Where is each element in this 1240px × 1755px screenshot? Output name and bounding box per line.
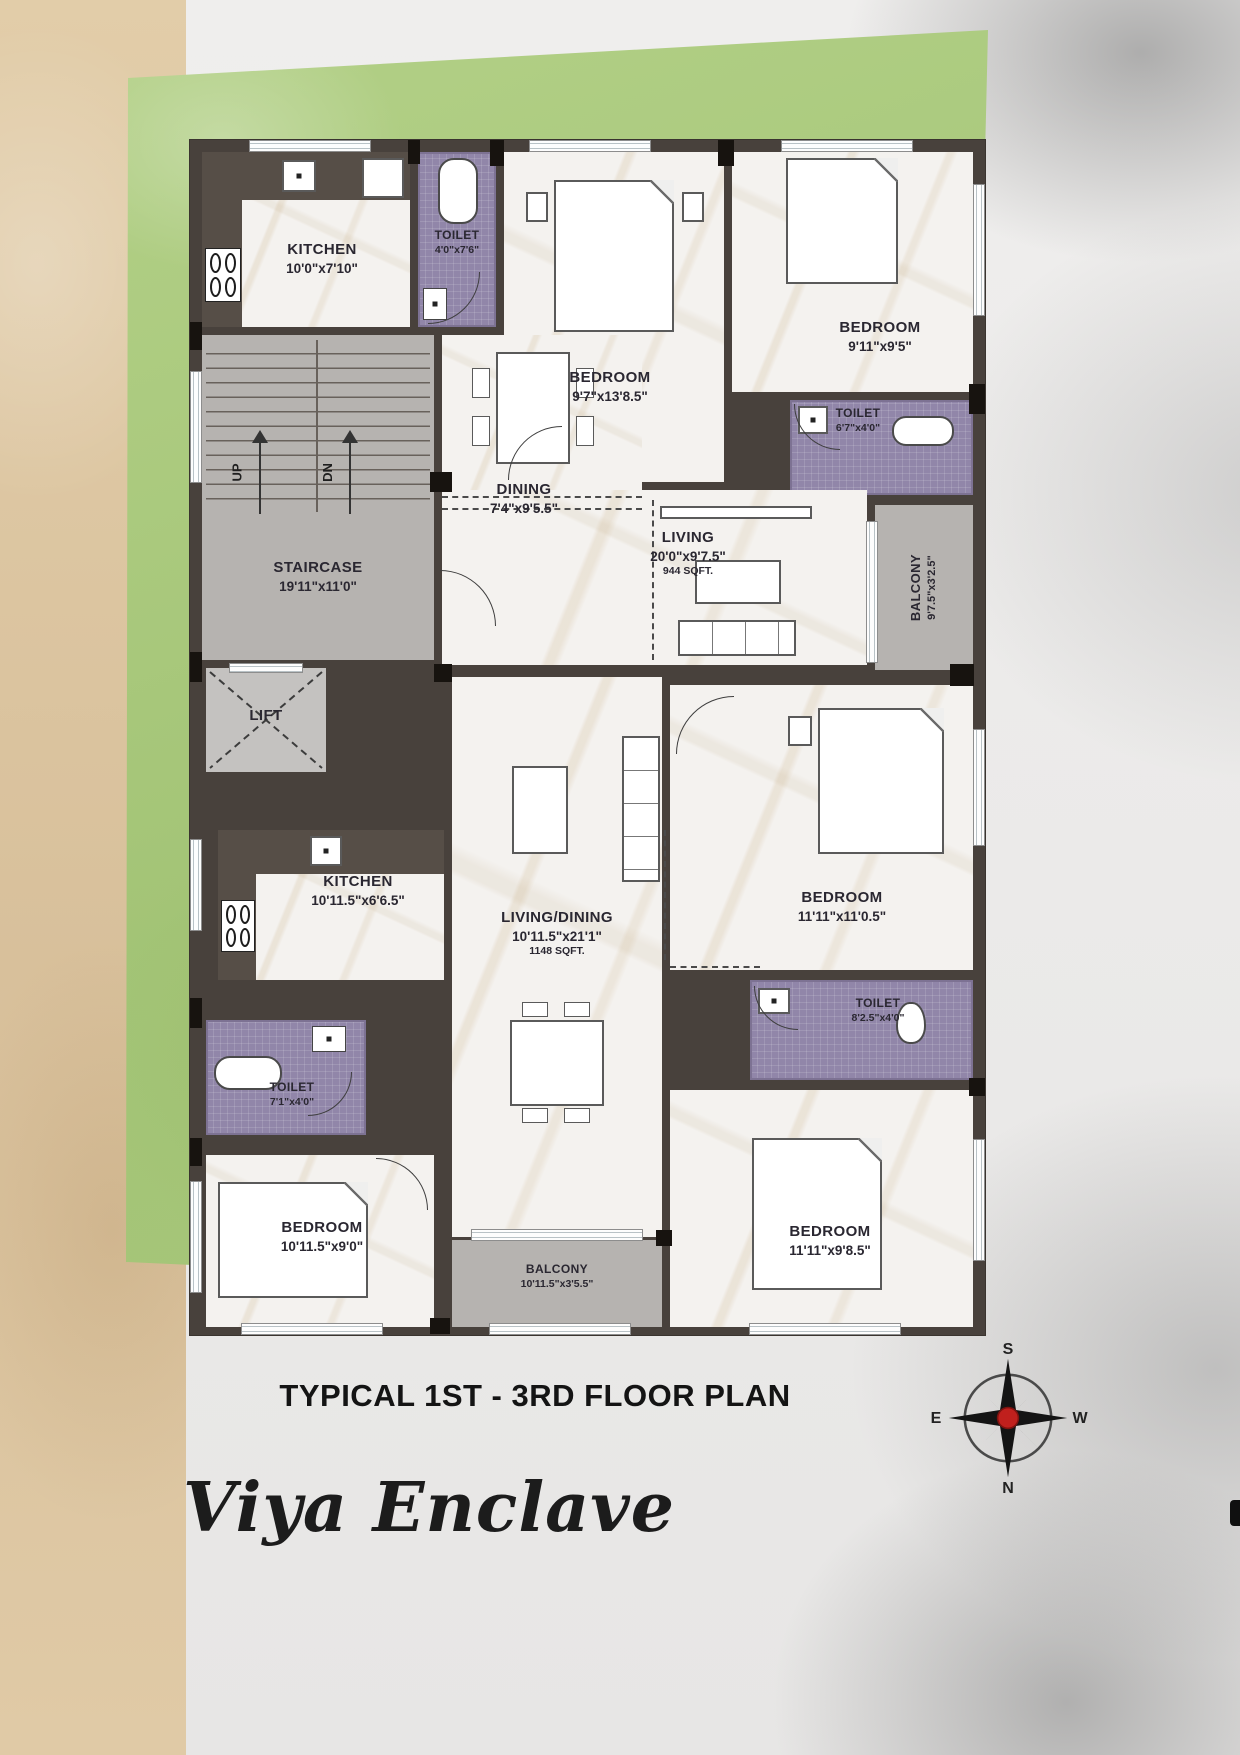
room-label-toilet-4: TOILET 8'2.5"x4'0" bbox=[852, 996, 905, 1025]
room-dims: 10'11.5"x3'5.5" bbox=[521, 1278, 594, 1292]
staircase-steps bbox=[206, 340, 430, 512]
column bbox=[430, 1318, 450, 1334]
blanket-fold bbox=[920, 708, 944, 732]
room-name: BEDROOM bbox=[839, 318, 920, 338]
room-name: LIFT bbox=[249, 706, 282, 726]
room-dims: 11'11"x9'8.5" bbox=[789, 1242, 871, 1260]
room-name: STAIRCASE bbox=[273, 558, 362, 578]
column bbox=[969, 384, 985, 414]
blanket-fold bbox=[650, 180, 674, 204]
toilet-1-bathtub bbox=[438, 158, 478, 224]
window bbox=[191, 1182, 201, 1292]
lift-door bbox=[230, 664, 302, 672]
burner bbox=[225, 277, 236, 297]
living-1-sofa bbox=[678, 620, 796, 656]
room-label-toilet-3: TOILET 7'1"x4'0" bbox=[270, 1080, 315, 1109]
burner bbox=[226, 905, 236, 924]
room-name: BEDROOM bbox=[569, 368, 650, 388]
living-dining-coffee-table bbox=[512, 766, 568, 854]
room-name: BEDROOM bbox=[798, 888, 886, 908]
window bbox=[490, 1324, 630, 1334]
room-dims: 7'4"x9'5.5" bbox=[490, 500, 558, 518]
room-name: TOILET bbox=[435, 228, 480, 244]
dining-1-chair bbox=[472, 416, 490, 446]
window bbox=[250, 141, 370, 151]
blanket-fold bbox=[344, 1182, 368, 1206]
balcony-1-window bbox=[867, 522, 877, 662]
room-dims: 20'0"x9'7.5" bbox=[650, 548, 726, 566]
down-arrow-stem bbox=[349, 442, 351, 514]
blanket-fold bbox=[858, 1138, 882, 1162]
room-name: KITCHEN bbox=[311, 872, 405, 892]
burner bbox=[226, 928, 236, 947]
toilet-2-tub bbox=[892, 416, 954, 446]
opening-dash bbox=[670, 966, 760, 968]
room-name: TOILET bbox=[852, 996, 905, 1012]
staircase-down-label: DN bbox=[320, 463, 335, 482]
column bbox=[434, 664, 452, 682]
balcony-2-window bbox=[472, 1230, 642, 1240]
compass-top-label: S bbox=[1003, 1341, 1014, 1358]
kitchen-2-sink bbox=[310, 836, 342, 866]
dining-2-chair bbox=[564, 1002, 590, 1017]
up-arrow-stem bbox=[259, 442, 261, 514]
room-label-bedroom-1: BEDROOM 9'7"x13'8.5" bbox=[569, 368, 650, 405]
column bbox=[656, 1230, 672, 1246]
bedroom-5-bed bbox=[752, 1138, 882, 1290]
room-dims: 11'11"x11'0.5" bbox=[798, 908, 886, 926]
room-label-living-dining: LIVING/DINING 10'11.5"x21'1" 1148 SQFT. bbox=[501, 908, 613, 959]
window bbox=[242, 1324, 382, 1334]
compass-icon: S N E W bbox=[928, 1338, 1088, 1498]
window bbox=[750, 1324, 900, 1334]
column bbox=[430, 472, 452, 492]
room-label-balcony-1: BALCONY 9'7.5"x3'2.5" bbox=[908, 554, 939, 621]
room-name: BEDROOM bbox=[281, 1218, 363, 1238]
room-name: BALCONY bbox=[521, 1262, 594, 1278]
room-area: 1148 SQFT. bbox=[501, 945, 613, 959]
blanket-fold bbox=[874, 158, 898, 182]
window bbox=[191, 372, 201, 482]
column bbox=[969, 1078, 985, 1096]
column bbox=[490, 140, 504, 166]
room-dims: 10'0"x7'10" bbox=[286, 260, 358, 278]
room-dims: 19'11"x11'0" bbox=[273, 578, 362, 596]
window bbox=[974, 185, 984, 315]
room-label-bedroom-5: BEDROOM 11'11"x9'8.5" bbox=[789, 1222, 871, 1259]
edge-artifact bbox=[1230, 1500, 1240, 1526]
toilet-3-sink bbox=[312, 1026, 346, 1052]
staircase-up-label: UP bbox=[230, 463, 245, 481]
room-label-bedroom-2: BEDROOM 9'11"x9'5" bbox=[839, 318, 920, 355]
room-label-kitchen-1: KITCHEN 10'0"x7'10" bbox=[286, 240, 358, 277]
bedroom-3-nightstand bbox=[788, 716, 812, 746]
compass-right-label: W bbox=[1072, 1410, 1088, 1427]
compass-rose: S N E W bbox=[928, 1338, 1088, 1498]
window bbox=[974, 730, 984, 845]
room-balcony-1: BALCONY 9'7.5"x3'2.5" bbox=[875, 505, 973, 670]
column bbox=[190, 1138, 202, 1166]
dining-2-chair bbox=[522, 1108, 548, 1123]
room-label-toilet-2: TOILET 6'7"x4'0" bbox=[836, 406, 881, 435]
column bbox=[718, 140, 734, 166]
column bbox=[190, 998, 202, 1028]
room-dims: 10'11.5"x6'6.5" bbox=[311, 892, 405, 910]
kitchen-2-stove-icon bbox=[221, 900, 255, 952]
room-dims: 7'1"x4'0" bbox=[270, 1096, 315, 1110]
room-name: BEDROOM bbox=[789, 1222, 871, 1242]
room-dims: 10'11.5"x9'0" bbox=[281, 1238, 363, 1256]
burner bbox=[210, 253, 221, 273]
dining-2-chair bbox=[522, 1002, 548, 1017]
room-name: BALCONY bbox=[908, 554, 925, 621]
window bbox=[782, 141, 912, 151]
room-dims: 4'0"x7'6" bbox=[435, 244, 480, 258]
opening-dash bbox=[664, 830, 666, 960]
room-label-dining: DINING 7'4"x9'5.5" bbox=[490, 480, 558, 517]
burner bbox=[225, 253, 236, 273]
floor-plan: UP DN BALCONY 9'7.5"x3'2.5" bbox=[190, 140, 985, 1335]
room-name: KITCHEN bbox=[286, 240, 358, 260]
room-dims: 10'11.5"x21'1" bbox=[501, 928, 613, 946]
burner bbox=[240, 905, 250, 924]
compass-bottom-label: N bbox=[1002, 1480, 1014, 1497]
column bbox=[190, 652, 202, 682]
compass-left-label: E bbox=[931, 1410, 942, 1427]
room-label-bedroom-4: BEDROOM 10'11.5"x9'0" bbox=[281, 1218, 363, 1255]
room-dims: 9'7.5"x3'2.5" bbox=[925, 554, 939, 621]
project-name: Viya Enclave bbox=[183, 1468, 675, 1548]
room-label-toilet-1: TOILET 4'0"x7'6" bbox=[435, 228, 480, 257]
dining-1-chair bbox=[472, 368, 490, 398]
window bbox=[530, 141, 650, 151]
page: { "footer": { "caption": "TYPICAL 1ST - … bbox=[0, 0, 1240, 1755]
room-name: TOILET bbox=[270, 1080, 315, 1096]
kitchen-1-unit bbox=[362, 158, 404, 198]
column bbox=[408, 140, 420, 164]
kitchen-1-sink bbox=[282, 160, 316, 192]
room-name: LIVING bbox=[650, 528, 726, 548]
living-dining-sofa bbox=[622, 736, 660, 882]
burner bbox=[210, 277, 221, 297]
column bbox=[950, 664, 974, 686]
room-label-kitchen-2: KITCHEN 10'11.5"x6'6.5" bbox=[311, 872, 405, 909]
dining-2-chair bbox=[564, 1108, 590, 1123]
bedroom-3-bed bbox=[818, 708, 944, 854]
room-dims: 8'2.5"x4'0" bbox=[852, 1012, 905, 1026]
room-label-living: LIVING 20'0"x9'7.5" 944 SQFT. bbox=[650, 528, 726, 579]
kitchen-1-stove-icon bbox=[205, 248, 241, 302]
staircase-divider bbox=[316, 340, 318, 512]
opening-dash bbox=[652, 500, 654, 660]
plan-caption: TYPICAL 1ST - 3RD FLOOR PLAN bbox=[205, 1378, 865, 1414]
bedroom-2-bed bbox=[786, 158, 898, 284]
room-label-bedroom-3: BEDROOM 11'11"x11'0.5" bbox=[798, 888, 886, 925]
room-dims: 9'11"x9'5" bbox=[839, 338, 920, 356]
room-dims: 9'7"x13'8.5" bbox=[569, 388, 650, 406]
room-label-staircase: STAIRCASE 19'11"x11'0" bbox=[273, 558, 362, 595]
room-area: 944 SQFT. bbox=[650, 565, 726, 579]
room-name: LIVING/DINING bbox=[501, 908, 613, 928]
living-1-tv-unit bbox=[660, 506, 812, 519]
room-label-lift: LIFT bbox=[249, 706, 282, 726]
window bbox=[191, 840, 201, 930]
burner bbox=[240, 928, 250, 947]
dining-1-chair bbox=[576, 416, 594, 446]
bedroom-1-nightstand bbox=[526, 192, 548, 222]
room-name: TOILET bbox=[836, 406, 881, 422]
bedroom-1-bed bbox=[554, 180, 674, 332]
room-name: DINING bbox=[490, 480, 558, 500]
bedroom-1-nightstand bbox=[682, 192, 704, 222]
column bbox=[190, 322, 202, 350]
dining-2-table bbox=[510, 1020, 604, 1106]
window bbox=[974, 1140, 984, 1260]
room-dims: 6'7"x4'0" bbox=[836, 422, 881, 436]
room-label-balcony-2: BALCONY 10'11.5"x3'5.5" bbox=[521, 1262, 594, 1291]
